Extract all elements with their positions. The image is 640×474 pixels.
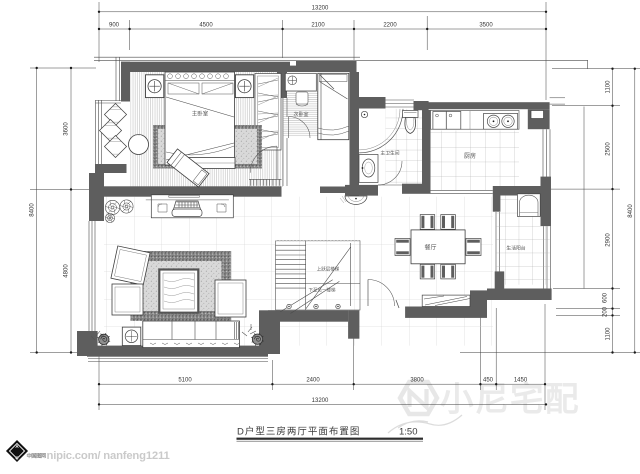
svg-text:厨房: 厨房 [464,152,476,160]
svg-text:900: 900 [109,23,120,29]
svg-text:13200: 13200 [312,6,329,12]
svg-text:次卧室: 次卧室 [293,111,308,118]
svg-text:3600: 3600 [64,122,70,136]
svg-text:1450: 1450 [514,378,528,384]
svg-text:2900: 2900 [606,233,612,247]
svg-text:4500: 4500 [199,23,213,29]
svg-text:1100: 1100 [606,327,612,341]
svg-text:nipic.com/ nanfeng1211: nipic.com/ nanfeng1211 [47,450,170,462]
svg-text:主卧室: 主卧室 [192,110,209,118]
svg-text:8400: 8400 [30,203,36,217]
svg-text:4800: 4800 [64,264,70,278]
svg-text:200: 200 [603,306,609,317]
svg-text:600: 600 [603,292,609,303]
svg-text:13200: 13200 [312,398,329,404]
svg-text:上跃层楼梯: 上跃层楼梯 [317,266,340,273]
svg-text:450: 450 [483,378,494,384]
svg-text:3500: 3500 [479,23,493,29]
svg-text:主卫生间: 主卫生间 [380,150,399,157]
svg-text:餐厅: 餐厅 [424,244,436,252]
svg-text:2200: 2200 [383,23,397,29]
svg-text:5100: 5100 [178,378,192,384]
svg-text:生活阳台: 生活阳台 [506,245,525,252]
svg-text:2100: 2100 [311,23,325,29]
svg-text:1100: 1100 [606,80,612,94]
svg-text:8400: 8400 [628,204,634,218]
svg-text:D户型三房两厅平面布置图: D户型三房两厅平面布置图 [237,426,360,438]
svg-text:小尼宅配: 小尼宅配 [440,381,580,419]
svg-text:1:50: 1:50 [399,427,418,438]
svg-text:2500: 2500 [606,142,612,156]
svg-text:3800: 3800 [410,378,424,384]
svg-text:下至负一楼梯: 下至负一楼梯 [309,287,336,294]
svg-text:中国图网: 中国图网 [27,452,46,460]
svg-text:2400: 2400 [306,378,320,384]
